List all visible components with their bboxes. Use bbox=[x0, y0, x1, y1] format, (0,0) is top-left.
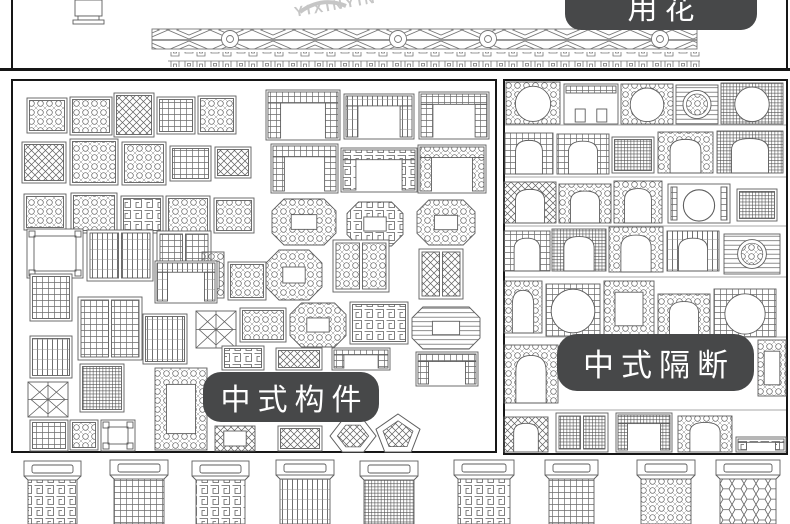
right-cad-panel bbox=[503, 79, 788, 455]
door-drawing bbox=[545, 460, 598, 524]
screenshot-root: YIXINYIN 用花 中式构件 中式隔断 bbox=[0, 0, 790, 524]
watermark-text: YIXINYIN bbox=[293, 0, 378, 20]
door-drawing bbox=[454, 460, 514, 524]
badge-top-label: 用花 bbox=[621, 0, 702, 28]
category-badge-top-right: 用花 bbox=[565, 0, 757, 30]
top-strip-right-border bbox=[786, 0, 788, 68]
category-badge-left-panel: 中式构件 bbox=[203, 372, 379, 422]
top-strip-left-border bbox=[11, 0, 13, 68]
door-drawing bbox=[110, 460, 168, 524]
door-drawing bbox=[360, 461, 418, 524]
door-drawing bbox=[192, 461, 249, 524]
door-drawing bbox=[24, 461, 81, 524]
badge-left-label: 中式构件 bbox=[214, 375, 369, 419]
door-drawing bbox=[276, 460, 334, 524]
badge-right-label: 中式隔断 bbox=[576, 340, 735, 385]
door-drawing bbox=[716, 460, 780, 524]
category-badge-right-panel: 中式隔断 bbox=[557, 334, 754, 391]
top-strip-bottom-rule bbox=[0, 68, 790, 71]
door-drawing bbox=[637, 460, 695, 524]
